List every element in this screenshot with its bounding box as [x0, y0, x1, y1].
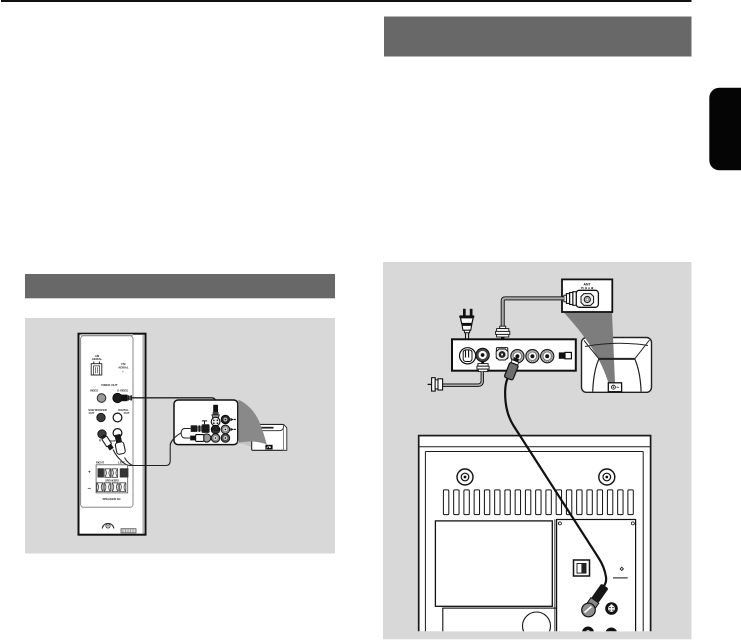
svg-text:RIGHT: RIGHT: [96, 461, 104, 465]
svg-text:LEFT: LEFT: [118, 461, 125, 465]
svg-text:OUT: OUT: [124, 411, 130, 415]
svg-text:VIDEO OUT: VIDEO OUT: [101, 383, 118, 387]
svg-text:75 Ω ⊔ ⊕: 75 Ω ⊔ ⊕: [581, 286, 594, 290]
svg-text:R: R: [99, 439, 101, 443]
svg-text:VIDEO: VIDEO: [90, 389, 98, 393]
svg-text:SPEAKERS: SPEAKERS: [105, 480, 119, 483]
svg-text:AERIAL: AERIAL: [92, 357, 103, 361]
svg-text:SPEAKER 4Ω: SPEAKER 4Ω: [102, 497, 121, 501]
svg-text:+: +: [88, 470, 91, 475]
svg-text:S-VIDEO: S-VIDEO: [117, 389, 128, 393]
svg-text:OUT: OUT: [89, 411, 95, 415]
